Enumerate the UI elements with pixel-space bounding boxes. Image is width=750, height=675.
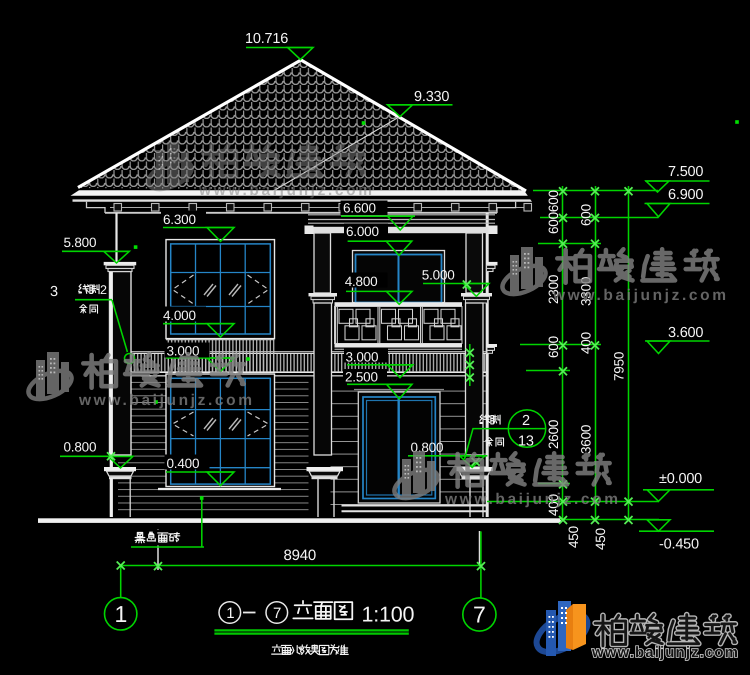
svg-text:450: 450 xyxy=(593,528,608,550)
svg-text:2.500: 2.500 xyxy=(345,370,378,385)
svg-text:13: 13 xyxy=(518,434,534,450)
svg-text:5.000: 5.000 xyxy=(422,268,455,283)
svg-text:3: 3 xyxy=(50,284,58,300)
svg-text:6.900: 6.900 xyxy=(668,187,703,203)
svg-text:3600: 3600 xyxy=(579,425,594,454)
svg-text:3.600: 3.600 xyxy=(668,325,703,341)
svg-text:4.800: 4.800 xyxy=(345,274,378,289)
svg-text:2600: 2600 xyxy=(546,420,561,449)
svg-text:0.400: 0.400 xyxy=(167,456,200,471)
svg-text:8940: 8940 xyxy=(284,547,317,564)
svg-text:1: 1 xyxy=(115,601,128,627)
svg-text:9.330: 9.330 xyxy=(414,89,449,105)
svg-text:1: 1 xyxy=(226,605,234,622)
svg-text:600600: 600600 xyxy=(546,190,561,234)
svg-text:1:100: 1:100 xyxy=(362,603,415,627)
svg-text:400: 400 xyxy=(579,332,594,354)
svg-text:5.800: 5.800 xyxy=(64,235,97,250)
svg-text:10.716: 10.716 xyxy=(245,31,288,47)
svg-text:www.baijunjz.com: www.baijunjz.com xyxy=(591,644,738,661)
svg-text:6.600: 6.600 xyxy=(343,201,376,216)
svg-text:7: 7 xyxy=(273,605,281,622)
svg-text:4.000: 4.000 xyxy=(163,308,196,323)
svg-text:600: 600 xyxy=(546,336,561,358)
svg-text:3.000: 3.000 xyxy=(346,350,379,365)
svg-text:6.300: 6.300 xyxy=(163,212,196,227)
svg-text:-0.450: -0.450 xyxy=(659,537,699,553)
svg-text:2: 2 xyxy=(100,283,107,297)
svg-text:±0.000: ±0.000 xyxy=(659,471,702,487)
svg-text:7950: 7950 xyxy=(612,352,627,381)
svg-text:6.000: 6.000 xyxy=(346,224,379,239)
svg-text:450: 450 xyxy=(566,526,581,548)
svg-text:7: 7 xyxy=(473,602,486,628)
svg-text:0.800: 0.800 xyxy=(64,440,97,455)
svg-text:2: 2 xyxy=(522,413,530,429)
svg-text:7.500: 7.500 xyxy=(668,164,703,180)
